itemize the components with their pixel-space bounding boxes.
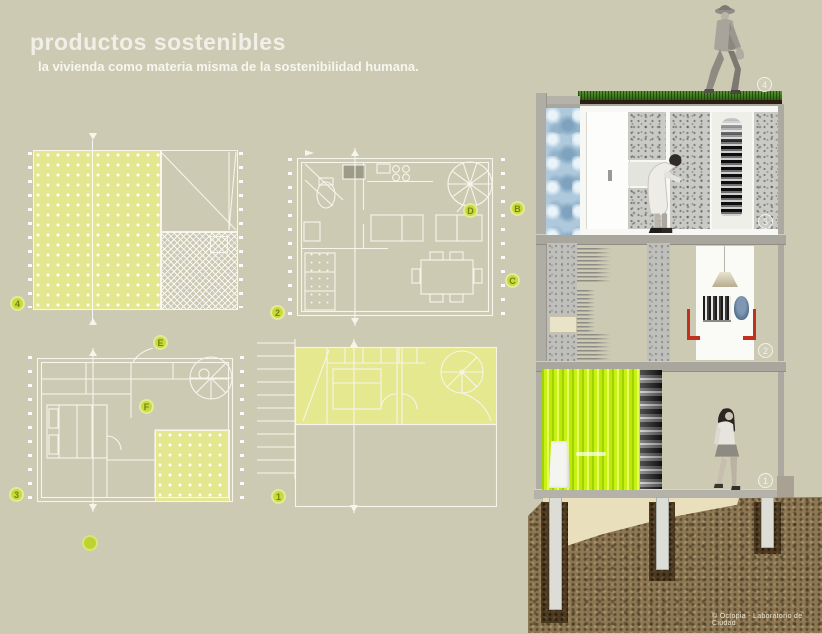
plan3-marker-f: F <box>139 399 154 414</box>
plan4-centerline <box>92 140 93 320</box>
floor3-door-handle <box>608 170 612 181</box>
plan2-ticks-right <box>501 158 505 318</box>
plan3-ticks-left <box>28 356 32 508</box>
plan3-ticks-right <box>240 356 244 508</box>
plan4-centerline-marker-top <box>89 133 97 140</box>
floor2-alcove <box>696 246 754 360</box>
plan4-centerline-marker-bottom <box>89 318 97 325</box>
floor1-planter <box>549 441 570 488</box>
plan1-badge: 1 <box>271 489 286 504</box>
floor2-jagged-stripes-bottom <box>577 334 611 360</box>
floor3-concrete-panel-d <box>754 112 778 229</box>
pile-right <box>761 497 774 548</box>
floor1-metal-column <box>640 370 662 489</box>
pendant-lamp <box>712 272 738 287</box>
slide: productos sostenibles la vivienda como m… <box>0 0 822 634</box>
plan2-badge: 2 <box>270 305 285 320</box>
bookshelf <box>703 296 731 322</box>
person-walking-roof <box>700 2 752 94</box>
floor3-water-wall <box>546 108 580 235</box>
floorplan-1 <box>257 339 497 513</box>
plan4-ticks-left <box>28 152 32 308</box>
section-roof-badge: 4 <box>757 77 772 92</box>
floorplan-3 <box>33 348 240 512</box>
plan4-ticks-right <box>239 152 243 308</box>
plan3-badge: 3 <box>9 487 24 502</box>
copyright-text: © Octopia - Laboratorio de Ciudad <box>712 613 822 627</box>
floor1-side-block <box>777 476 794 498</box>
floor3-spiral-stair <box>721 118 742 216</box>
floor2-badge: 2 <box>758 343 773 358</box>
section-right-wall <box>778 104 784 491</box>
plan2-marker-d: D <box>463 203 478 218</box>
person-bending-floor3 <box>638 148 686 235</box>
floor2-bench <box>549 316 577 333</box>
plan4-badge: 4 <box>10 296 25 311</box>
floor1-badge: 1 <box>758 473 773 488</box>
plan2-marker-b: B <box>510 201 525 216</box>
red-bracket-right-foot <box>743 336 756 340</box>
floor2-jagged-stripes-top <box>577 248 611 282</box>
floor3-badge: 3 <box>758 214 773 229</box>
plan4-lines <box>33 150 238 310</box>
person-standing-floor1 <box>702 407 748 490</box>
floorplan-2 <box>293 148 500 326</box>
floor2-jagged-stripes-mid <box>577 290 595 334</box>
plan3-green-dot <box>82 535 98 551</box>
pile-left <box>549 497 562 610</box>
lamp-cord <box>724 246 725 272</box>
plan2-ticks-left <box>288 158 292 318</box>
floor2-left-wall-texture <box>547 243 577 361</box>
floor2-column-texture <box>647 243 670 361</box>
curtain-label <box>576 452 606 456</box>
floor3-interior <box>580 106 778 235</box>
plan2-marker-c: C <box>505 273 520 288</box>
pile-middle <box>656 497 669 570</box>
page-title: productos sostenibles <box>30 29 286 56</box>
red-bracket-left-foot <box>687 336 700 340</box>
vase <box>734 296 749 320</box>
page-subtitle: la vivienda como materia misma de la sos… <box>38 59 419 74</box>
plan3-marker-e: E <box>153 335 168 350</box>
floorplan-4 <box>33 150 238 310</box>
